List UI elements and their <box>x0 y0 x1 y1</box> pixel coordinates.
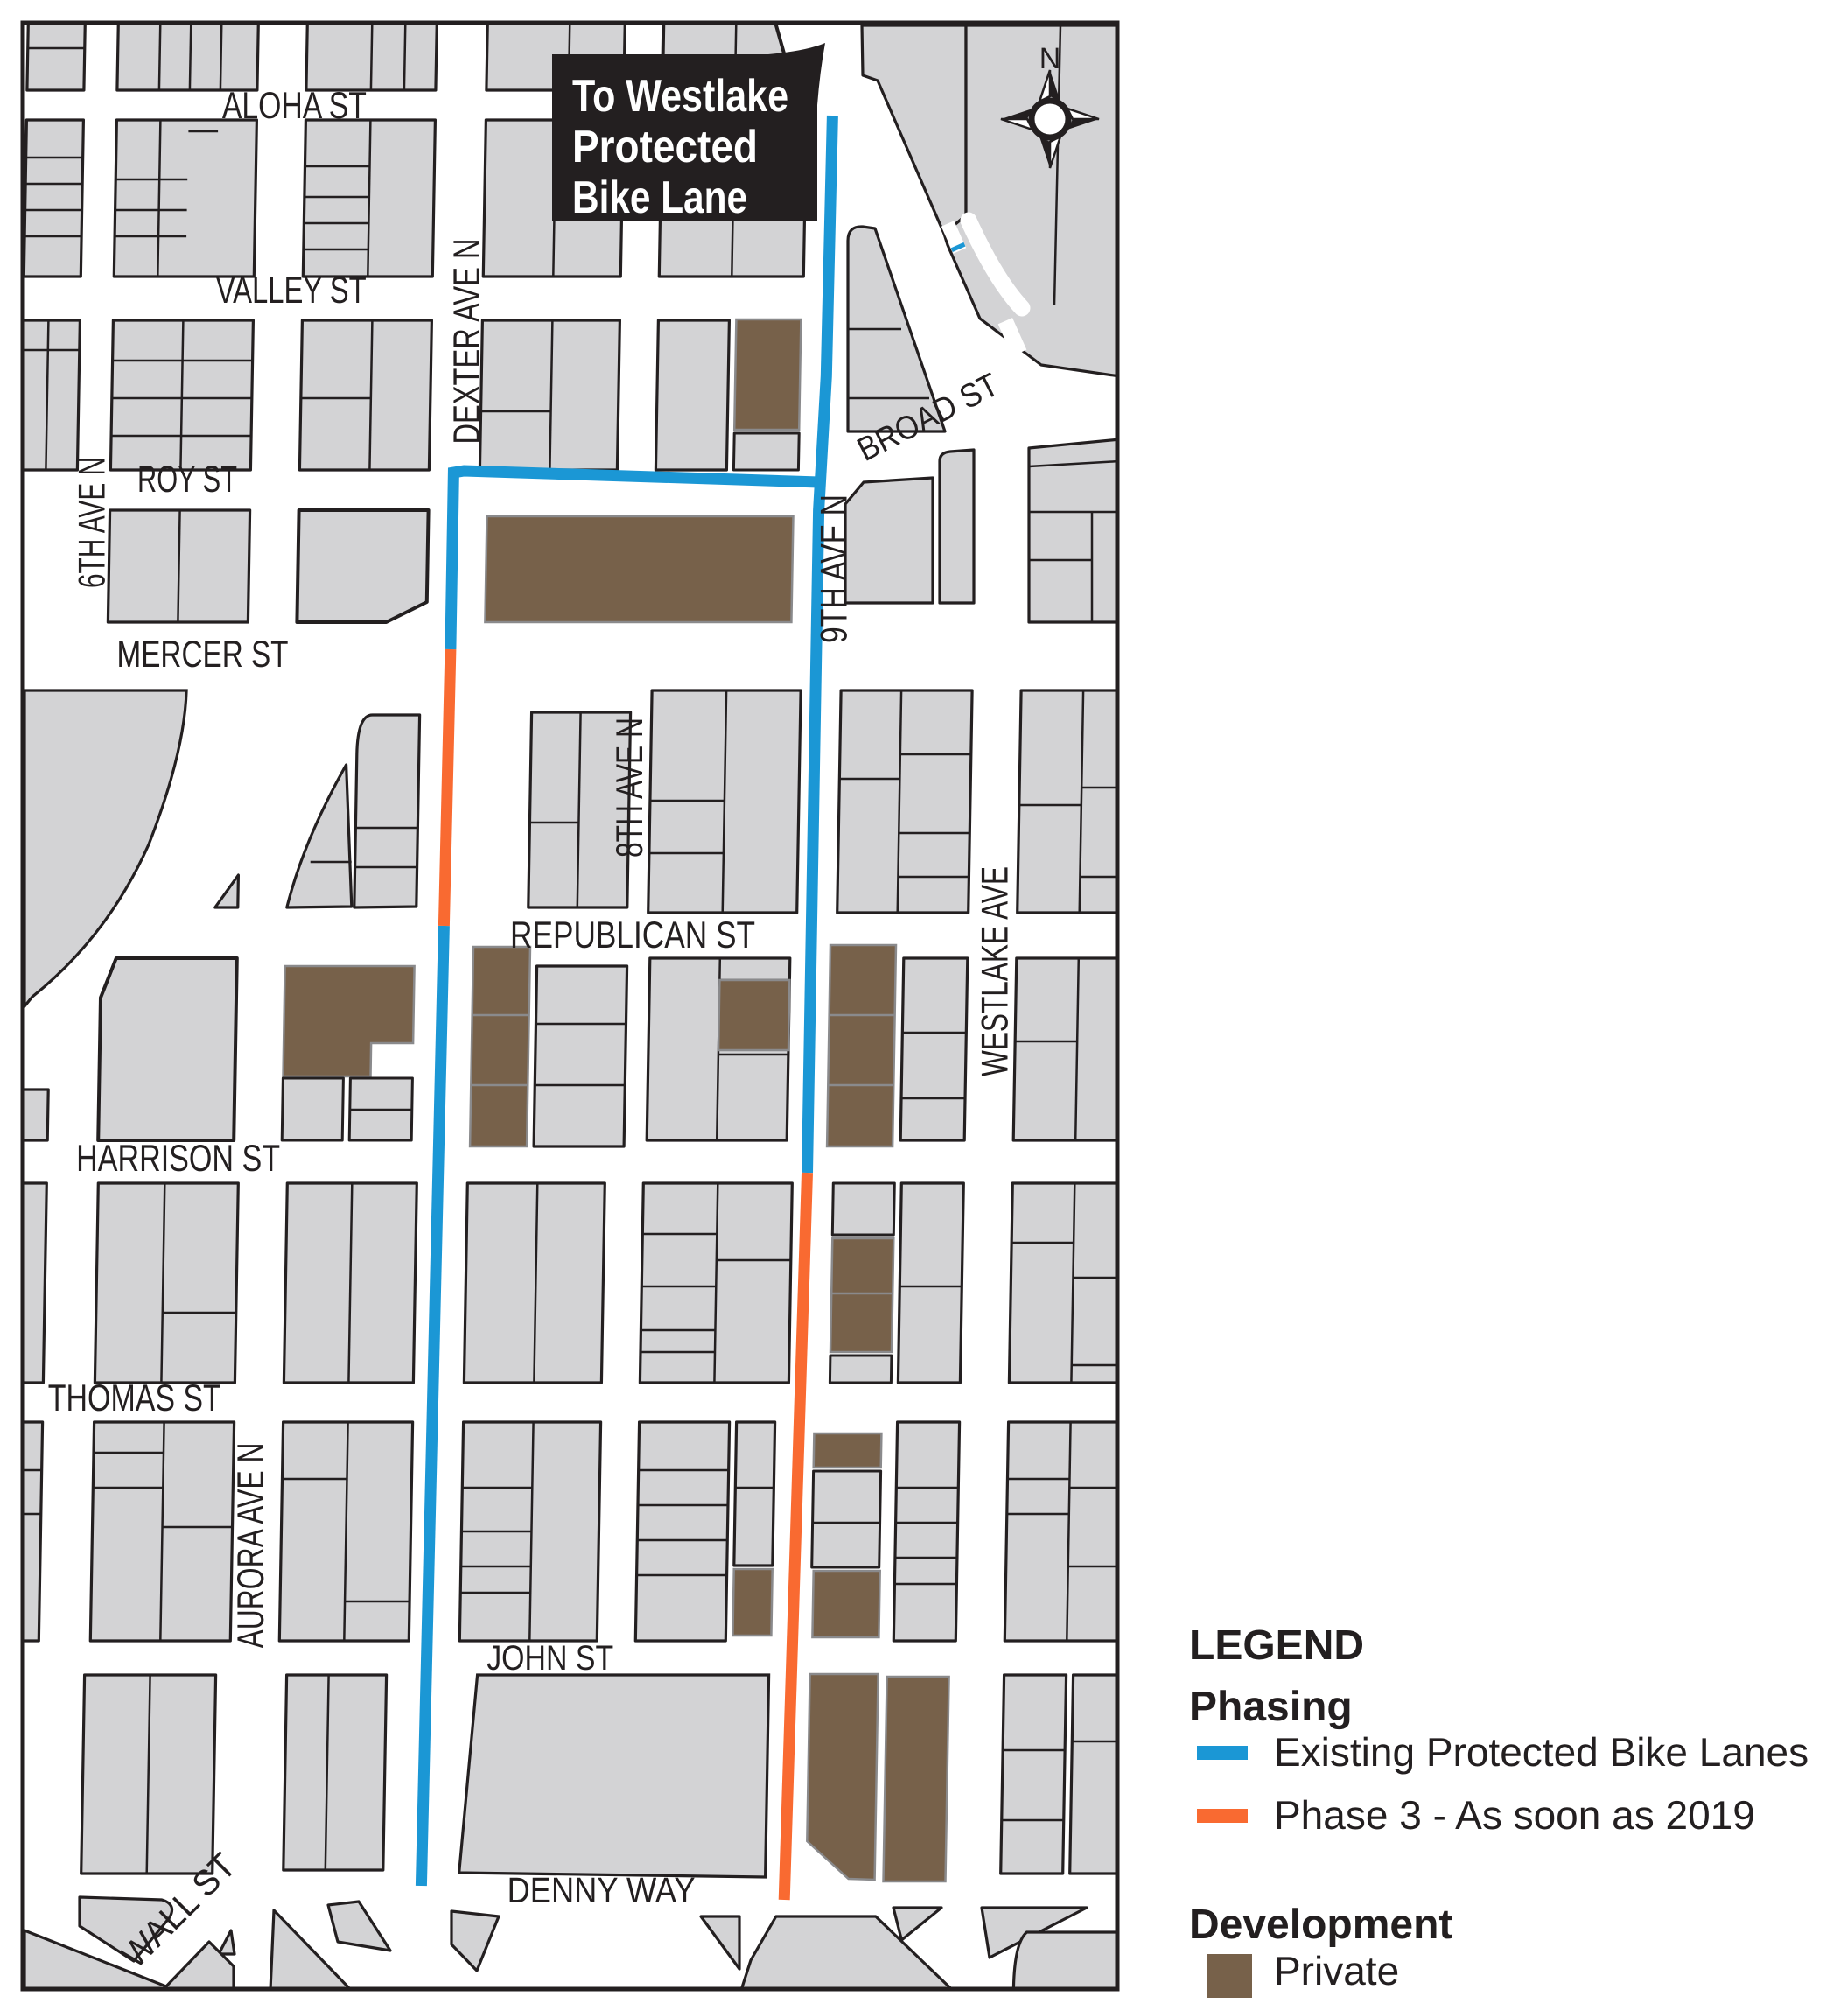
svg-text:Development: Development <box>1189 1902 1452 1948</box>
svg-text:Protected: Protected <box>572 122 758 172</box>
svg-text:MERCER ST: MERCER ST <box>117 634 289 676</box>
svg-text:VALLEY ST: VALLEY ST <box>216 270 367 312</box>
svg-text:Phasing: Phasing <box>1189 1684 1353 1730</box>
svg-text:9TH AVE N: 9TH AVE N <box>814 494 856 643</box>
svg-text:Phase 3 - As soon as 2019: Phase 3 - As soon as 2019 <box>1274 1792 1755 1838</box>
svg-text:6TH AVE N: 6TH AVE N <box>71 457 113 588</box>
svg-text:Existing Protected Bike Lanes: Existing Protected Bike Lanes <box>1274 1729 1809 1775</box>
svg-text:Bike Lane: Bike Lane <box>572 172 747 223</box>
svg-text:WESTLAKE AVE: WESTLAKE AVE <box>975 866 1017 1076</box>
svg-text:HARRISON ST: HARRISON ST <box>76 1138 280 1180</box>
svg-text:AURORA AVE N: AURORA AVE N <box>230 1443 272 1649</box>
svg-text:JOHN ST: JOHN ST <box>486 1639 613 1678</box>
svg-text:DENNY WAY: DENNY WAY <box>507 1870 696 1910</box>
svg-text:DEXTER AVE N: DEXTER AVE N <box>446 239 488 445</box>
svg-text:ALOHA ST: ALOHA ST <box>222 85 367 127</box>
svg-text:To Westlake: To Westlake <box>572 71 788 122</box>
svg-text:REPUBLICAN ST: REPUBLICAN ST <box>510 914 755 956</box>
svg-text:ROY ST: ROY ST <box>137 459 237 501</box>
svg-text:THOMAS ST: THOMAS ST <box>48 1377 221 1419</box>
svg-text:Private: Private <box>1274 1948 1399 1993</box>
svg-text:LEGEND: LEGEND <box>1189 1622 1364 1669</box>
svg-text:8TH AVE N: 8TH AVE N <box>609 718 651 858</box>
